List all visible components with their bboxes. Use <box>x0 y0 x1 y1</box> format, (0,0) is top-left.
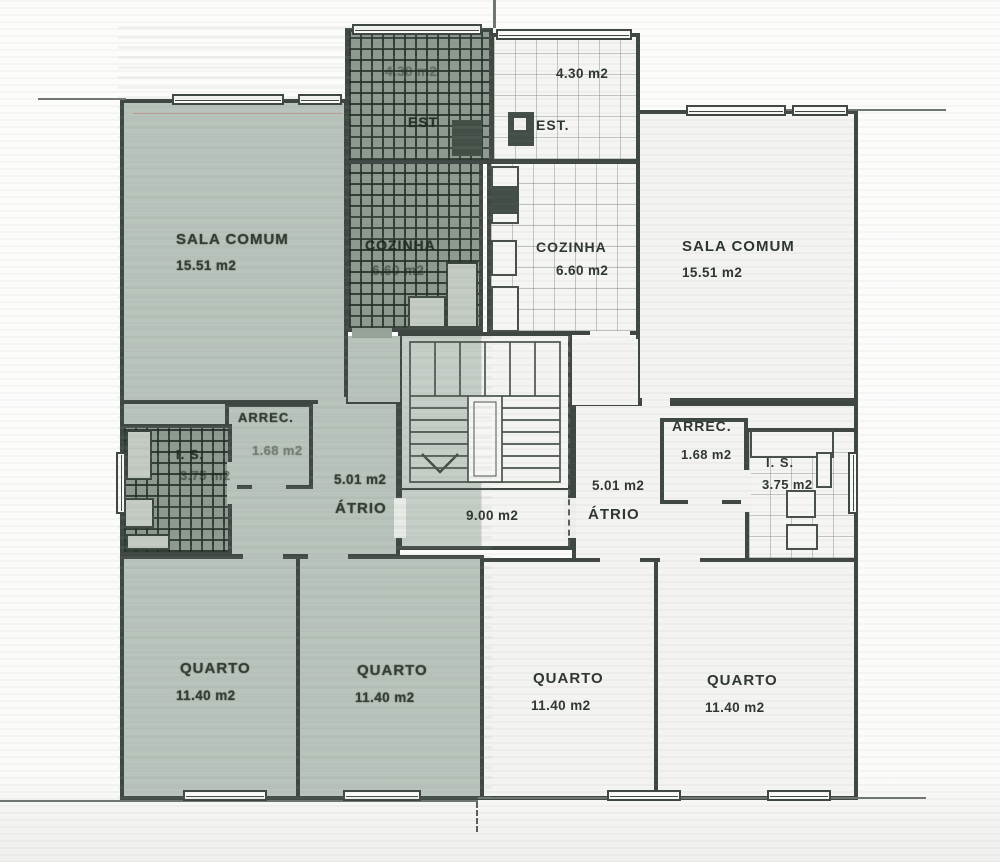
counter-left-cozinha-1 <box>446 262 478 328</box>
window-right-quarto-2 <box>767 790 831 801</box>
window-left-sala-2 <box>298 94 342 105</box>
label-stairwell-area: 9.00 m2 <box>466 508 518 523</box>
label-left-quarto2-area: 11.40 m2 <box>355 690 415 705</box>
counter-right-cozinha-3 <box>491 286 519 332</box>
label-left-sala-area: 15.51 m2 <box>176 258 236 273</box>
reference-line-bottom-right <box>478 797 926 799</box>
door-right-quarto-1 <box>600 554 640 566</box>
window-right-quarto-1 <box>607 790 681 801</box>
label-left-arrec-area: 1.68 m2 <box>252 443 303 458</box>
label-left-quarto1-area: 11.40 m2 <box>176 688 236 703</box>
equipment-left-est <box>452 120 482 156</box>
window-right-sala-1 <box>686 105 786 116</box>
door-right-quarto-2 <box>660 554 700 566</box>
label-right-est-area: 4.30 m2 <box>556 66 608 81</box>
label-right-quarto2-name: QUARTO <box>707 672 778 689</box>
window-left-quarto-1 <box>183 790 267 801</box>
entrance-door-left <box>394 498 406 538</box>
center-axis-tick-bottom <box>476 802 478 832</box>
label-left-is-area: 3.75 m2 <box>180 468 231 483</box>
room-right-sala-comum <box>636 110 858 402</box>
window-right-sala-2 <box>792 105 848 116</box>
door-left-quarto-1 <box>243 551 283 563</box>
center-axis-tick-top <box>493 0 496 28</box>
stairwell <box>398 332 572 492</box>
appliance-right-cozinha <box>491 186 519 214</box>
fixture-right-is-2 <box>786 490 816 518</box>
label-right-sala-name: SALA COMUM <box>682 238 795 255</box>
fixture-left-is-1 <box>126 430 152 480</box>
label-left-est-name: EST <box>408 114 438 130</box>
equipment-right-est-detail <box>514 118 526 130</box>
label-right-cozinha-name: COZINHA <box>536 239 607 255</box>
fixture-left-is-2 <box>124 498 154 528</box>
label-right-is-name: I. S. <box>766 455 794 470</box>
label-right-sala-area: 15.51 m2 <box>682 265 742 280</box>
room-left-quarto-1 <box>120 555 300 800</box>
label-left-arrec-name: ARREC. <box>238 410 294 425</box>
label-right-quarto1-name: QUARTO <box>533 670 604 687</box>
door-right-sala-atrio <box>642 398 670 410</box>
label-left-atrio-name: ÁTRIO <box>335 500 387 517</box>
label-right-atrio-area: 5.01 m2 <box>592 478 644 493</box>
label-right-atrio-name: ÁTRIO <box>588 506 640 523</box>
window-right-is <box>848 452 858 514</box>
label-right-cozinha-area: 6.60 m2 <box>556 263 608 278</box>
label-left-atrio-area: 5.01 m2 <box>334 472 386 487</box>
label-left-cozinha-area: 6.60 m2 <box>372 263 424 278</box>
label-right-quarto2-area: 11.40 m2 <box>705 700 765 715</box>
window-left-quarto-2 <box>343 790 421 801</box>
label-right-is-area: 3.75 m2 <box>762 477 813 492</box>
label-right-arrec-area: 1.68 m2 <box>681 447 732 462</box>
label-left-is-name: I. S. <box>176 447 204 462</box>
door-left-cozinha <box>352 328 392 338</box>
room-left-sala-comum <box>120 99 348 404</box>
door-right-arrec <box>688 499 722 509</box>
counter-right-cozinha-2 <box>491 240 517 276</box>
window-right-est <box>496 29 632 40</box>
door-left-quarto-2 <box>308 551 348 563</box>
counter-left-cozinha-2 <box>408 296 446 328</box>
label-left-quarto2-name: QUARTO <box>357 662 428 679</box>
label-right-est-name: EST. <box>536 117 570 133</box>
label-left-quarto1-name: QUARTO <box>180 660 251 677</box>
fixture-left-is-3 <box>126 534 170 550</box>
stairs-drawing <box>402 336 568 488</box>
door-left-sala-atrio <box>318 397 346 408</box>
scan-artifact-line <box>133 113 343 114</box>
window-left-is <box>116 452 126 514</box>
window-left-sala-1 <box>172 94 284 105</box>
door-right-is <box>741 470 751 512</box>
passage-right <box>572 339 638 405</box>
reference-line-right <box>760 109 946 111</box>
floor-plan: SALA COMUM 15.51 m2 COZINHA 6.60 m2 4.30… <box>0 0 1000 862</box>
door-left-arrec <box>252 484 286 494</box>
label-left-sala-name: SALA COMUM <box>176 231 289 248</box>
door-right-cozinha <box>590 331 630 341</box>
label-right-arrec-name: ARREC. <box>672 418 732 434</box>
passage-left <box>348 336 400 402</box>
fixture-right-is-1 <box>816 452 832 488</box>
label-left-cozinha-name: COZINHA <box>365 237 436 253</box>
window-left-est <box>352 24 482 35</box>
reference-line-left <box>38 98 126 100</box>
section-line <box>568 336 570 546</box>
fixture-right-is-3 <box>786 524 818 550</box>
label-left-est-area: 4.30 m2 <box>385 64 437 79</box>
label-right-quarto1-area: 11.40 m2 <box>531 698 591 713</box>
entrance-door-right <box>564 498 576 538</box>
